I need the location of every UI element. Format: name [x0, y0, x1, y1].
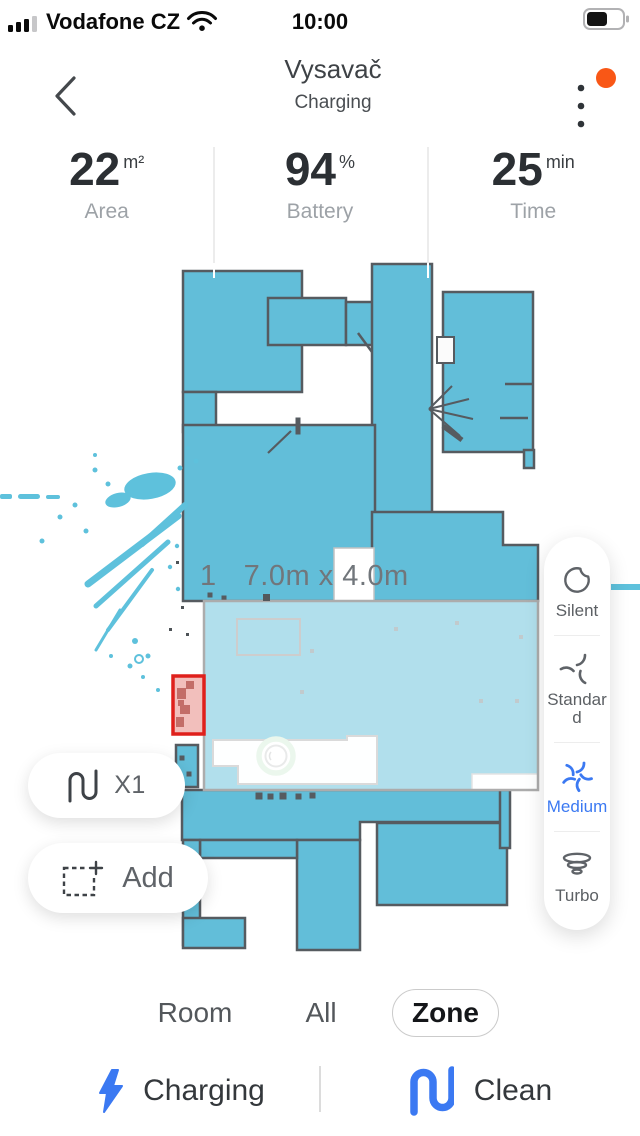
fan-option-standard[interactable]: Standard: [545, 651, 609, 728]
wifi-icon: [186, 8, 218, 32]
zone-size: 7.0m x 4.0m: [244, 560, 409, 593]
add-zone-icon: [62, 859, 106, 897]
signal-strength-icon: [8, 12, 42, 32]
charging-button[interactable]: Charging: [60, 1058, 300, 1124]
stat-area: 22m² Area: [0, 146, 213, 224]
area-value: 22: [69, 143, 120, 195]
repeat-count-label: X1: [114, 771, 146, 800]
battery-icon: [583, 8, 629, 30]
zone-number: 1: [200, 560, 217, 593]
status-bar: Vodafone CZ 10:00: [0, 0, 640, 44]
divider: [554, 831, 600, 832]
battery-label: Battery: [213, 200, 426, 224]
cleaning-zone-overlay[interactable]: [204, 601, 538, 790]
time-unit: min: [546, 152, 575, 172]
header: Vysavač Charging: [0, 54, 640, 114]
stat-time: 25min Time: [427, 146, 640, 224]
stat-divider: [427, 147, 429, 278]
fan-option-silent[interactable]: Silent: [545, 562, 609, 620]
turbo-icon: [559, 847, 595, 883]
area-unit: m²: [123, 152, 144, 172]
tab-zone[interactable]: Zone: [392, 989, 499, 1037]
clean-path-icon: [67, 769, 99, 803]
more-options-button[interactable]: [570, 50, 620, 130]
standard-fan-icon: [559, 651, 595, 687]
fan-speed-panel: Silent Standard: [544, 537, 610, 930]
divider: [554, 635, 600, 636]
battery-unit: %: [339, 152, 355, 172]
add-zone-button[interactable]: Add: [28, 843, 208, 913]
stat-divider: [213, 147, 215, 278]
medium-fan-icon: [559, 758, 595, 794]
charging-label: Charging: [143, 1074, 265, 1108]
fan-option-medium[interactable]: Medium: [545, 758, 609, 816]
divider: [554, 742, 600, 743]
tab-room[interactable]: Room: [158, 997, 233, 1029]
tab-all[interactable]: All: [305, 997, 336, 1029]
fan-option-turbo[interactable]: Turbo: [545, 847, 609, 905]
clean-button[interactable]: Clean: [360, 1058, 600, 1124]
repeat-count-button[interactable]: X1: [28, 753, 185, 818]
device-status-label: Charging: [26, 92, 640, 114]
no-go-zone[interactable]: [173, 676, 204, 734]
door-marker: [437, 337, 454, 363]
stats-row: 22m² Area 94% Battery 25min Time: [0, 146, 640, 224]
silent-moon-icon: [559, 562, 595, 598]
area-label: Area: [0, 200, 213, 224]
battery-value: 94: [285, 143, 336, 195]
carrier-label: Vodafone CZ: [46, 9, 180, 35]
add-zone-label: Add: [122, 862, 174, 895]
notification-dot: [596, 68, 616, 88]
time-label: Time: [427, 200, 640, 224]
clock-label: 10:00: [250, 9, 390, 35]
page-title: Vysavač: [26, 54, 640, 85]
clean-icon: [408, 1066, 454, 1116]
lightning-icon: [95, 1068, 125, 1114]
zone-resize-handle[interactable]: [263, 594, 270, 601]
time-value: 25: [492, 143, 543, 195]
stat-battery: 94% Battery: [213, 146, 426, 224]
vacuum-app-screen: Vodafone CZ 10:00 Vysavač Charging 22m² …: [0, 0, 640, 1136]
zone-label: 1 7.0m x 4.0m: [200, 560, 409, 593]
clean-label: Clean: [474, 1074, 552, 1108]
